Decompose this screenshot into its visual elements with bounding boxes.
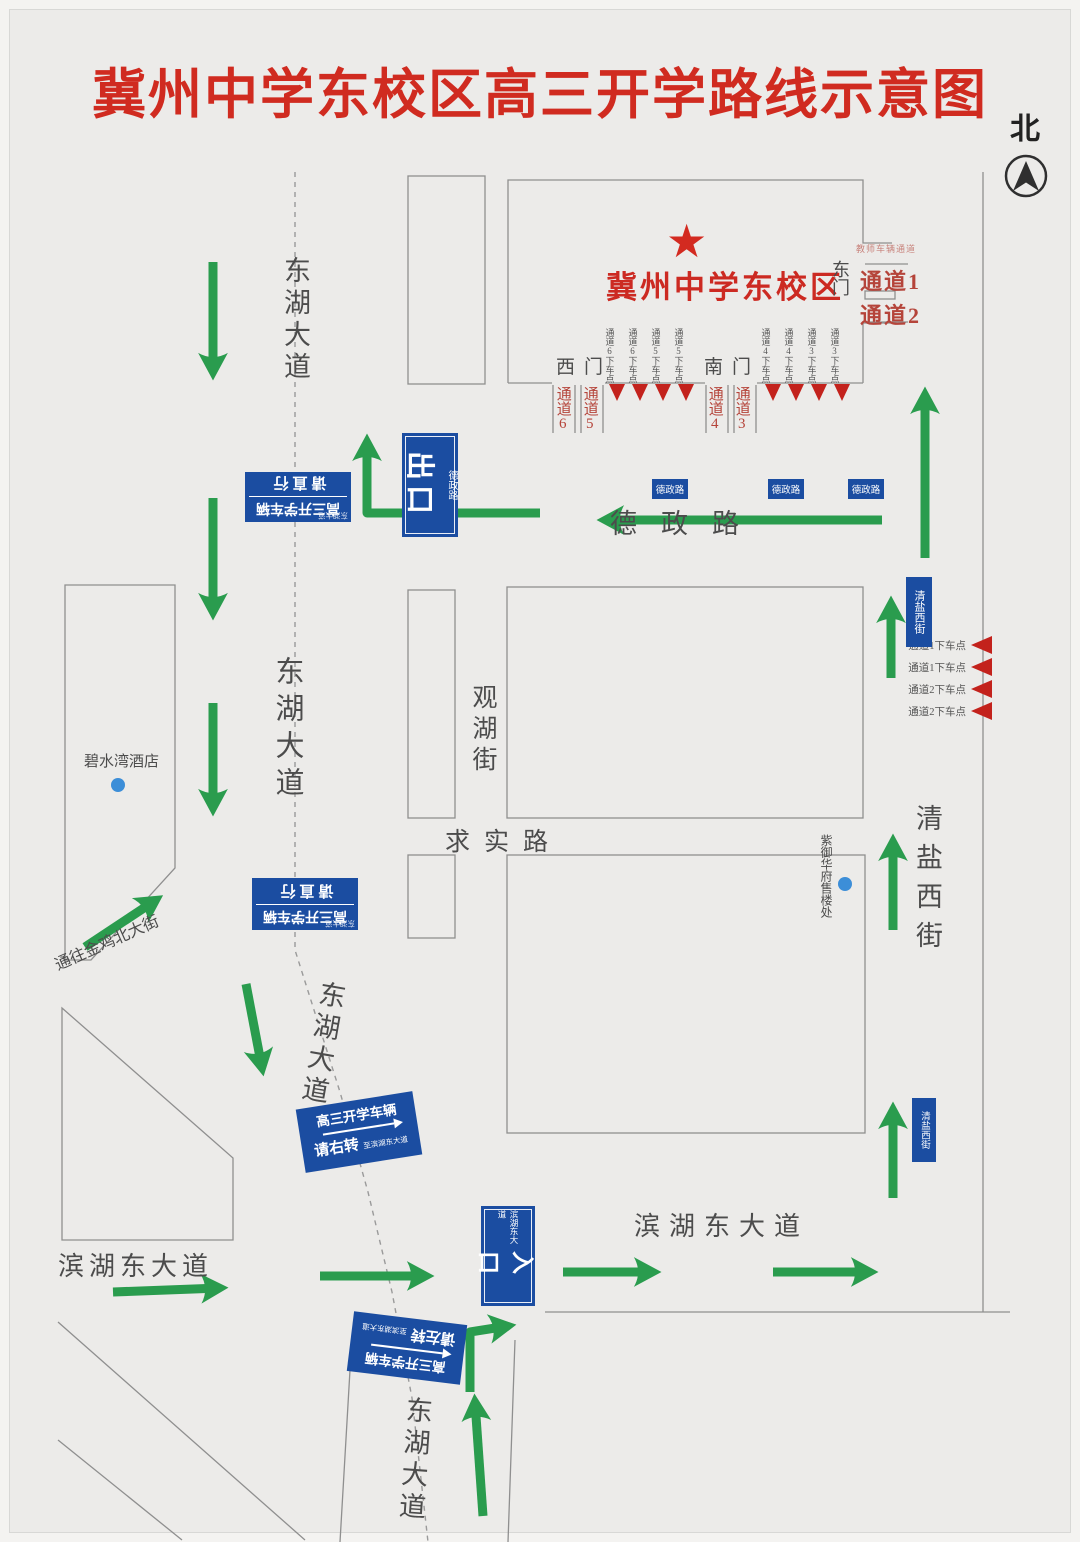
- road-plate-dezheng-1: 德政路: [652, 479, 688, 499]
- dropoff-markers-south: [609, 384, 850, 401]
- road-plate-dezheng-3: 德政路: [848, 479, 884, 499]
- road-plate-qingyan-1: 清盐西街: [906, 577, 932, 647]
- route-arrow-entrance-turn: [470, 1326, 508, 1392]
- dropoff-label: 通道6下车点: [627, 328, 636, 384]
- dropoff-label: 通道2下车点: [902, 682, 966, 697]
- road-label-donghu-1: 东湖大道: [276, 256, 315, 388]
- dropoff-label: 通道2下车点: [902, 704, 966, 719]
- road-plate-qingyan-2: 清盐西街: [912, 1098, 936, 1162]
- route-arrows: [85, 262, 925, 1516]
- channel-1-label: 通道1: [860, 264, 921, 296]
- channel-6-label: 通道6: [554, 386, 570, 436]
- north-compass-icon: [1006, 156, 1046, 196]
- channel-3-label: 通道3: [733, 386, 749, 436]
- road-label-dezheng: 德政路: [610, 502, 763, 541]
- east-gate-label: 东门: [827, 260, 853, 308]
- dropoff-label: 通道3下车点: [806, 328, 815, 384]
- dropoff-label: 通道5下车点: [673, 328, 682, 384]
- map-canvas: [0, 0, 1080, 1542]
- sign-go-straight-1: 东湖大道 高三开学车辆 请直行: [245, 472, 351, 522]
- channel-2-label: 通道2: [860, 298, 921, 330]
- poi-sales-office-label: 紫御华府售楼处: [818, 834, 835, 936]
- channel-5-label: 通道5: [581, 386, 597, 436]
- road-label-qiushi: 求实路: [445, 822, 562, 858]
- route-arrow-donghu-up: [475, 1402, 483, 1516]
- sign-go-straight-2: 东湖大道 高三开学车辆 请直行: [252, 878, 358, 930]
- south-gate-label: 南门: [704, 352, 760, 379]
- dropoff-markers-east: [971, 636, 992, 720]
- east-channel-note: 教师车辆通道: [856, 242, 916, 255]
- road-label-guanhu: 观湖街: [464, 684, 500, 804]
- channel-4-label: 通道4: [706, 386, 722, 436]
- dropoff-label: 通道3下车点: [829, 328, 838, 384]
- north-label: 北: [1010, 104, 1040, 148]
- entrance-label: 入口: [474, 1251, 542, 1302]
- sign-exit-dezheng: 出口 德政路: [402, 433, 458, 537]
- sign-entrance-binhu: 滨湖东大道 入口: [481, 1206, 535, 1306]
- sales-office-dot: [838, 877, 852, 891]
- road-label-qingyan: 清盐西街: [908, 804, 947, 972]
- exit-road-label: 德政路: [444, 470, 459, 500]
- dropoff-label: 通道5下车点: [650, 328, 659, 384]
- sign-road-tag: 东湖大道: [325, 918, 355, 929]
- road-plate-dezheng-2: 德政路: [768, 479, 804, 499]
- dropoff-label: 通道4下车点: [783, 328, 792, 384]
- poi-hotel-label: 碧水湾酒店: [84, 750, 159, 771]
- page-title: 冀州中学东校区高三开学路线示意图: [0, 50, 1080, 129]
- road-label-donghu-2: 东湖大道: [266, 656, 308, 826]
- road-label-binhu-1: 滨湖东大道: [634, 1206, 809, 1243]
- road-label-binhu-2: 滨湖东大道: [58, 1246, 213, 1283]
- route-arrow-bend-down: [246, 984, 262, 1068]
- hotel-dot: [111, 778, 125, 792]
- route-map: 冀州中学东校区高三开学路线示意图 北 ★ 冀州中学东校区 东门 西门 南门 教师…: [0, 0, 1080, 1542]
- dropoff-label: 通道1下车点: [902, 660, 966, 675]
- dropoff-label: 通道6下车点: [604, 328, 613, 384]
- dropoff-label: 通道4下车点: [760, 328, 769, 384]
- route-arrow-binhu-1: [113, 1288, 220, 1292]
- sign-road-tag: 东湖大道: [318, 510, 348, 521]
- exit-label: 出口: [401, 451, 443, 519]
- entrance-road-label: 滨湖东大道: [496, 1210, 520, 1251]
- campus-star-icon: ★: [666, 218, 707, 264]
